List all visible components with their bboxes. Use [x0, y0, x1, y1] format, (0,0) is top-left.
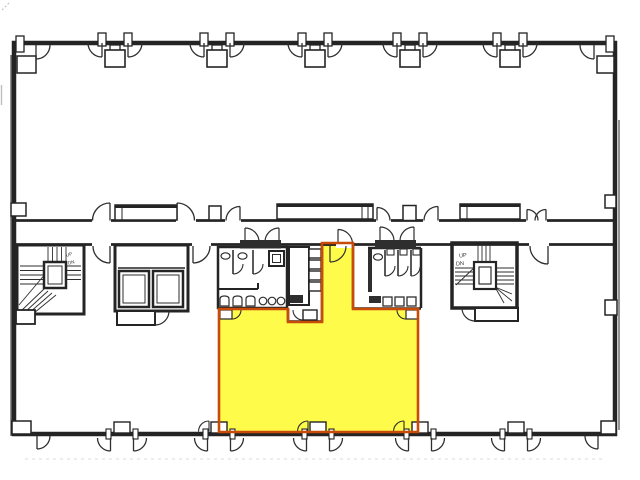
toilet-entry-slab: [240, 240, 281, 249]
notch-closet: [293, 310, 317, 320]
right-stairwell: UP DN: [452, 243, 518, 321]
corridor-jamb-box: [209, 206, 221, 220]
pipe-shaft: [309, 249, 321, 291]
sink: [395, 297, 404, 306]
sink: [383, 297, 392, 306]
corridor-cabinets: [115, 204, 520, 220]
toilet-fixture: [374, 254, 383, 260]
utility-room: [289, 247, 309, 305]
toilet-fixture: [238, 253, 247, 259]
urinals: [220, 296, 255, 306]
left-stairwell: UP DN: [16, 245, 84, 324]
right-stair-up-label: UP: [459, 253, 468, 260]
top-window-bays: [16, 33, 614, 73]
mens-toilet: [218, 228, 287, 308]
sink: [269, 251, 284, 266]
left-stair-dn-label: DN: [67, 259, 75, 265]
elevator-bank: [115, 245, 188, 325]
womens-toilet: [368, 227, 421, 308]
corridor-jamb-box: [403, 206, 416, 221]
floor-plan-scan: UP DN: [0, 0, 640, 480]
right-stair-dn-label: DN: [456, 261, 465, 268]
toilet-entry-slab: [375, 240, 416, 249]
sink: [407, 297, 416, 306]
toilet-fixture: [221, 253, 230, 259]
left-stair-up-label: UP: [65, 251, 73, 258]
floor-plan-canvas: UP DN: [0, 0, 640, 480]
